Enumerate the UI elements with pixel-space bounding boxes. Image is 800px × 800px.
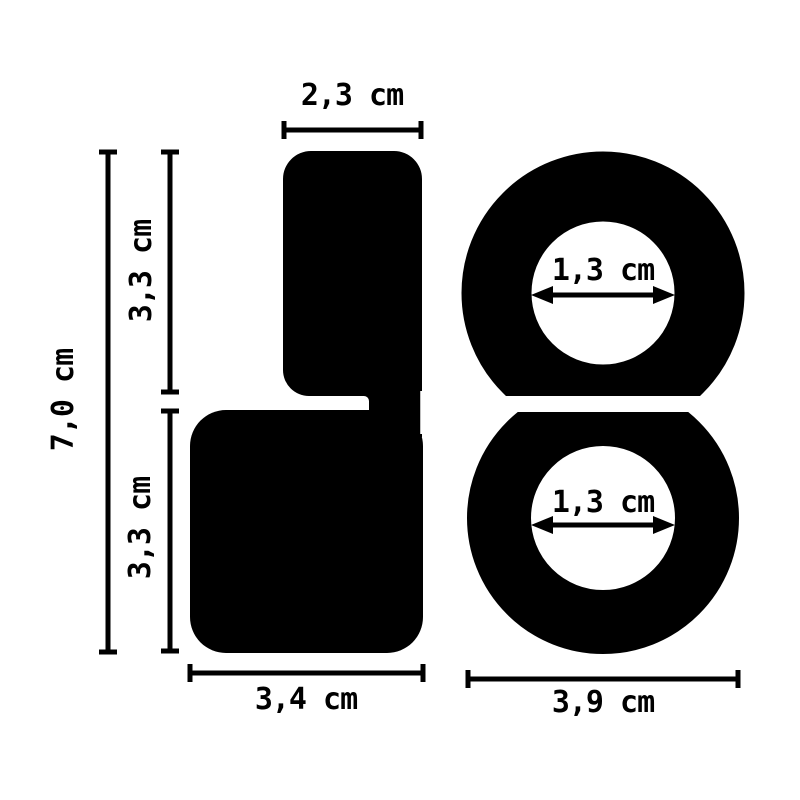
dimension-diagram: 2,3 cm 7,0 cm 3,3 cm 3,3 cm 3,4 cm 1,3 c… [0,0,800,800]
profile-upper-section [283,151,422,437]
profile-lower-section [190,410,423,653]
dim-label-top-ring-inner-diameter: 1,3 cm [503,256,703,286]
dim-line-base-width [190,664,423,682]
diagram-graphics [0,0,800,800]
dim-label-lower-height: 3,3 cm [126,428,156,628]
dim-line-total-height [99,152,117,652]
dim-label-upper-height: 3,3 cm [127,171,157,371]
dim-line-upper-height [161,152,179,392]
dim-label-top-width: 2,3 cm [252,81,452,111]
dim-label-total-height: 7,0 cm [49,300,79,500]
dim-label-base-width: 3,4 cm [206,685,406,715]
profile-silhouette [190,151,423,653]
front-rings [497,187,710,623]
dim-label-bottom-ring-inner-diameter: 1,3 cm [503,488,703,518]
dim-line-lower-height [161,411,179,651]
dim-label-ring-outer-width: 3,9 cm [503,688,703,718]
top-ring-diameter-arrow-icon [531,286,675,304]
dim-line-top-width [284,121,421,139]
